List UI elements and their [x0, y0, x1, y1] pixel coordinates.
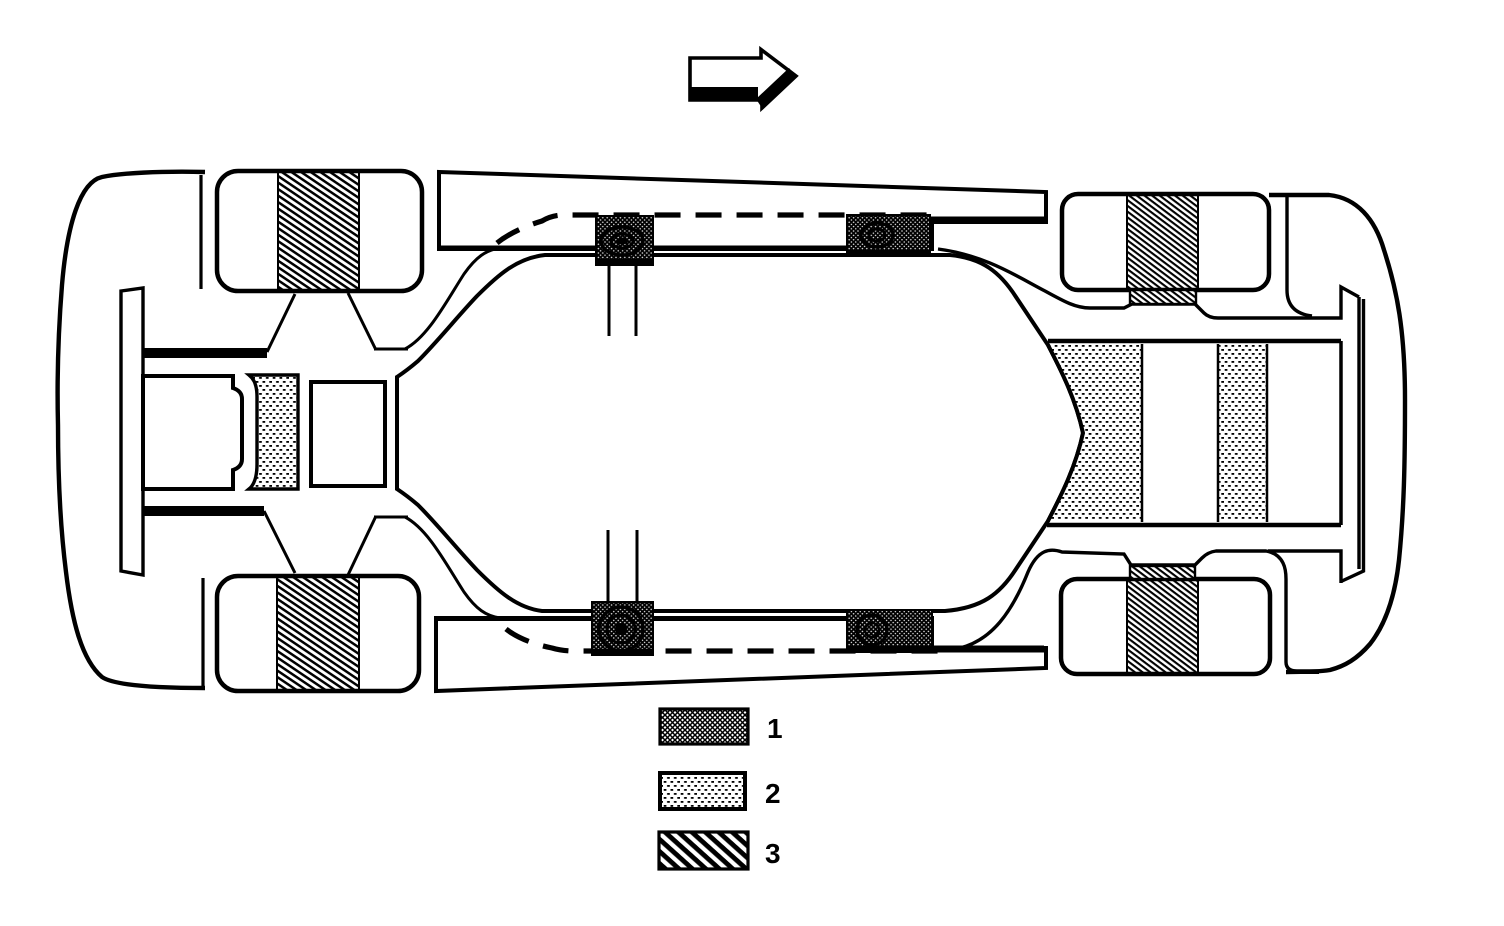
svg-text:3: 3	[765, 838, 781, 869]
svg-text:1: 1	[767, 713, 783, 744]
svg-text:2: 2	[765, 778, 781, 809]
